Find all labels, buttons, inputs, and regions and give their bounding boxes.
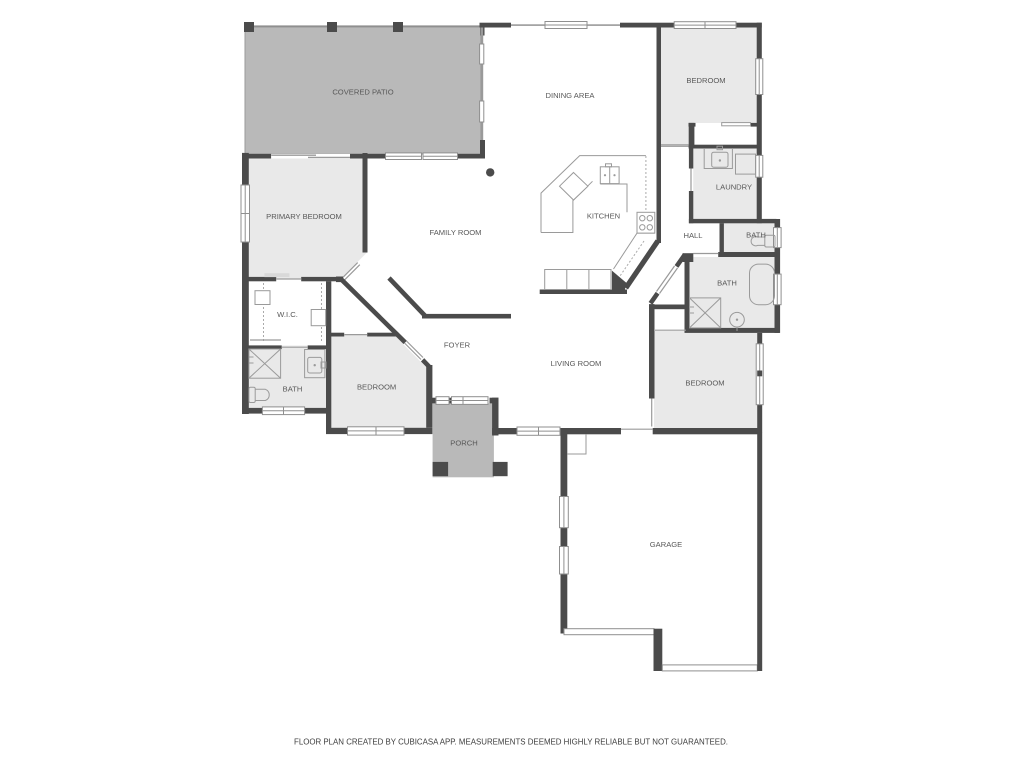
svg-text:HALL: HALL	[684, 231, 703, 240]
svg-text:BATH: BATH	[717, 279, 737, 288]
svg-text:BEDROOM: BEDROOM	[686, 76, 725, 85]
svg-text:KITCHEN: KITCHEN	[587, 212, 620, 221]
svg-text:BEDROOM: BEDROOM	[685, 379, 724, 388]
svg-text:COVERED PATIO: COVERED PATIO	[332, 88, 393, 97]
svg-text:BATH: BATH	[746, 230, 766, 239]
svg-text:PRIMARY BEDROOM: PRIMARY BEDROOM	[266, 212, 342, 221]
svg-text:LAUNDRY: LAUNDRY	[716, 183, 752, 192]
svg-text:LIVING ROOM: LIVING ROOM	[551, 359, 602, 368]
svg-text:BATH: BATH	[283, 385, 303, 394]
svg-text:FAMILY ROOM: FAMILY ROOM	[429, 228, 481, 237]
svg-text:W.I.C.: W.I.C.	[277, 310, 298, 319]
svg-text:FOYER: FOYER	[444, 341, 471, 350]
svg-text:FLOOR PLAN CREATED BY CUBICASA: FLOOR PLAN CREATED BY CUBICASA APP. MEAS…	[294, 738, 728, 747]
svg-text:GARAGE: GARAGE	[650, 540, 683, 549]
svg-text:BEDROOM: BEDROOM	[357, 382, 396, 391]
svg-text:PORCH: PORCH	[450, 438, 477, 447]
svg-text:DINING AREA: DINING AREA	[546, 91, 596, 100]
